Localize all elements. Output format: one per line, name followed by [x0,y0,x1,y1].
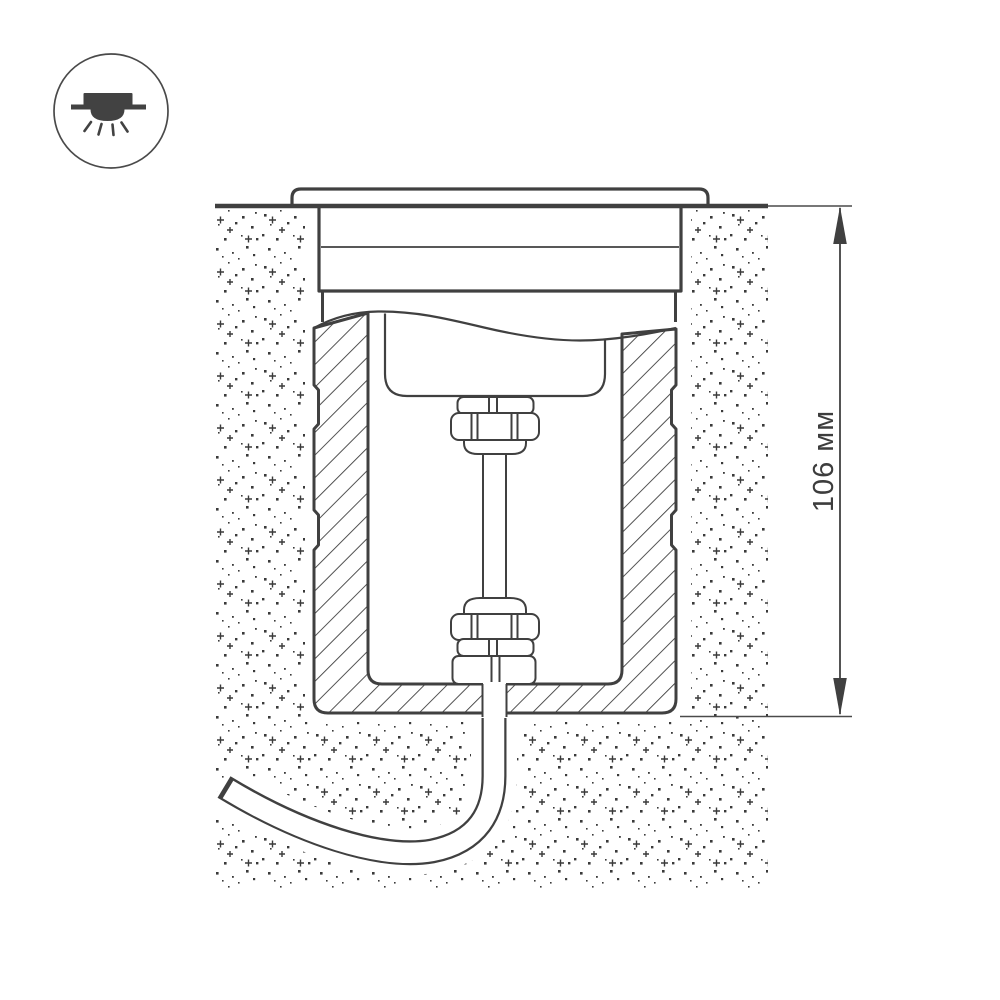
cable-gland-bottom [451,598,539,684]
flange [292,189,708,206]
arrowhead-down-icon [833,678,847,716]
page: 106 мм [0,0,1000,1000]
arrowhead-up-icon [833,207,847,245]
icon-mounting-surface [71,105,146,110]
fixture-head [319,206,681,291]
luminaire-cross-section [292,189,708,718]
recessed-downlight-icon [54,54,168,168]
cable-gland-top [451,397,539,454]
dimension-label: 106 мм [808,410,840,512]
installation-diagram: 106 мм [0,0,1000,1000]
